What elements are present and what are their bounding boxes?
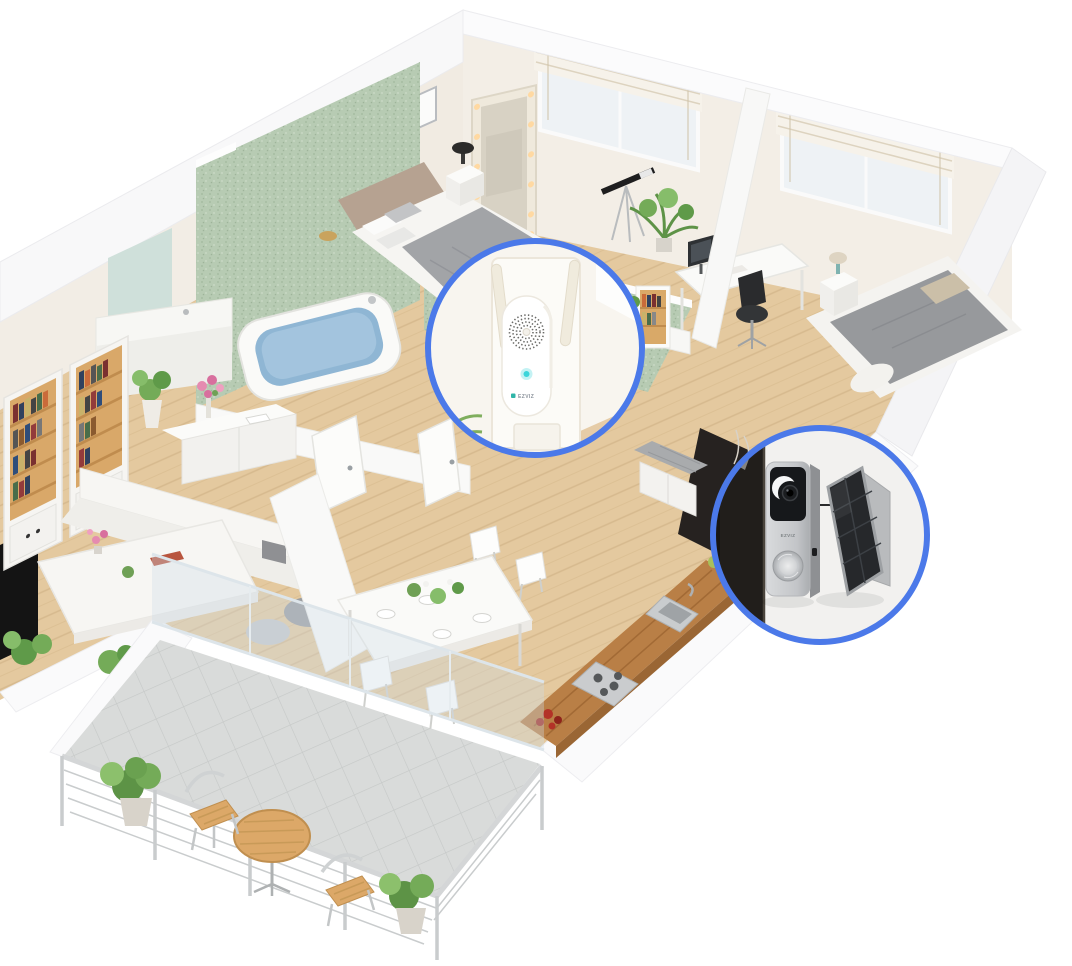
doorbell-device: EZVIZ	[766, 462, 820, 598]
port	[812, 548, 817, 556]
chime-device: EZVIZ	[502, 296, 551, 416]
power-outlet	[514, 424, 560, 450]
floor-plan-illustration: EZVIZ EZVIZ	[0, 0, 1072, 966]
flower-vase	[206, 398, 211, 418]
table-lamp-icon	[829, 252, 847, 264]
doorbell-brand-text: EZVIZ	[781, 533, 796, 538]
table-lamp-icon	[452, 142, 474, 154]
mini-plant	[122, 566, 134, 578]
status-led	[524, 371, 530, 377]
bath-faucet-icon	[368, 296, 376, 304]
door-handle-icon	[348, 466, 353, 471]
bookcase-unit	[4, 369, 62, 570]
door-handle-icon	[450, 460, 455, 465]
gold-lamp-icon	[319, 231, 337, 241]
chime-brand-text: EZVIZ	[518, 394, 534, 400]
